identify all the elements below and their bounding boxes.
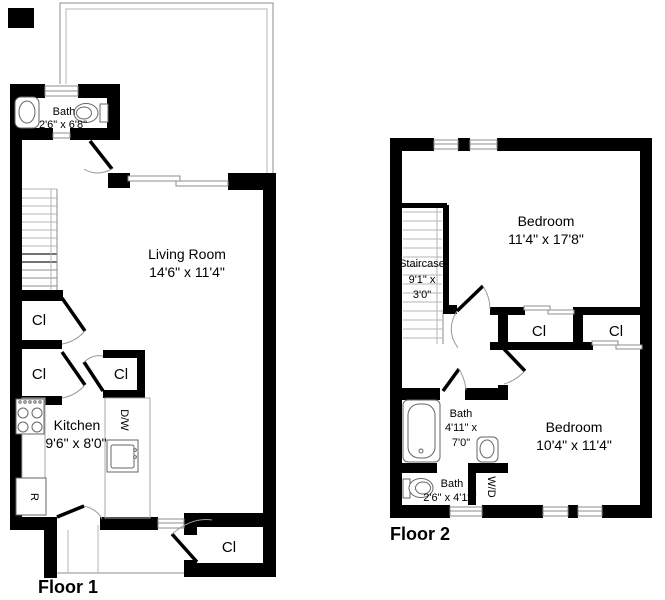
wall-segment	[390, 505, 450, 518]
kitchen-dims: 9'6" x 8'0"	[45, 435, 106, 451]
floor1-fixtures	[15, 97, 150, 518]
corner-marker	[8, 8, 34, 28]
wall-segment	[482, 505, 543, 518]
closet-label: Cl	[222, 539, 236, 556]
pocket-door-icon	[53, 133, 70, 138]
wall-segment	[10, 290, 63, 301]
wall-segment	[184, 563, 276, 577]
door-leaf	[62, 298, 85, 331]
wall-segment	[402, 203, 447, 208]
bedroom-large-dims: 11'4" x 17'8"	[508, 231, 584, 247]
bedroom-small-label: Bedroom	[546, 419, 603, 435]
wall-segment	[443, 205, 449, 308]
living-room-dims: 14'6" x 11'4"	[149, 264, 225, 280]
bedroom-small-dims: 10'4" x 11'4"	[536, 437, 612, 453]
sliding-door-icon	[616, 345, 642, 349]
floor-plan-page: Living Room 14'6" x 11'4" Kitchen 9'6" x…	[0, 0, 665, 600]
refrigerator-label: R	[28, 493, 40, 501]
sliding-door-icon	[524, 306, 550, 310]
closet-label: Cl	[609, 323, 623, 340]
floor1-plan: Living Room 14'6" x 11'4" Kitchen 9'6" x…	[10, 3, 276, 597]
door-leaf	[62, 352, 85, 385]
floor-plan-canvas: Living Room 14'6" x 11'4" Kitchen 9'6" x…	[0, 0, 665, 600]
sliding-door-icon	[548, 310, 574, 314]
bath-small-dims: 2'6" x 4'11"	[423, 492, 476, 504]
door-leaf	[84, 362, 103, 391]
toilet-icon	[100, 104, 108, 122]
floor2-plan: Bedroom 11'4" x 17'8" Bedroom 10'4" x 11…	[390, 138, 652, 544]
wall-segment	[640, 138, 652, 518]
door-leaf	[443, 369, 459, 391]
wall-segment	[498, 315, 508, 347]
door-leaf	[504, 349, 525, 371]
bath1-dims: 2'6" x 6'8"	[39, 119, 87, 131]
washer-dryer-label: W/D	[485, 476, 497, 497]
sliding-door-icon	[176, 181, 228, 186]
floor1-walls	[10, 84, 276, 578]
staircase-dims-1: 9'1" x	[409, 274, 436, 286]
wall-segment	[443, 305, 457, 314]
entry-vestibule-lines	[57, 525, 184, 573]
bath-large-dims-2: 7'0"	[452, 437, 470, 449]
wall-segment	[583, 307, 652, 315]
living-room-label: Living Room	[148, 246, 226, 262]
wall-segment	[490, 307, 525, 315]
wall-segment	[10, 84, 45, 98]
wall-segment	[468, 463, 508, 473]
wall-segment	[103, 390, 145, 398]
wall-segment	[465, 388, 508, 400]
closet-label: Cl	[532, 323, 546, 340]
closet-label: Cl	[32, 366, 46, 383]
bath-large-dims-1: 4'11" x	[445, 422, 478, 434]
wall-segment	[390, 388, 440, 400]
sliding-door-icon	[128, 176, 180, 181]
closet-label: Cl	[114, 366, 128, 383]
door-leaf	[457, 286, 483, 311]
dishwasher-label: D/W	[118, 409, 130, 431]
wall-segment	[10, 340, 62, 349]
staircase-floor1	[22, 189, 57, 290]
bath1-label: Bath	[53, 106, 76, 118]
door-leaf	[172, 534, 197, 562]
wall-segment	[107, 84, 120, 140]
wall-segment	[497, 138, 652, 151]
wall-segment	[263, 173, 276, 577]
wall-segment	[602, 505, 652, 518]
staircase-dims-2: 3'0"	[413, 289, 431, 301]
bath-small-label: Bath	[441, 478, 464, 490]
wall-segment	[10, 84, 22, 530]
kitchen-label: Kitchen	[54, 417, 101, 433]
floor1-title: Floor 1	[38, 577, 98, 597]
wall-segment	[390, 138, 402, 518]
staircase-label: Staircase	[399, 258, 445, 270]
closet-label: Cl	[32, 312, 46, 329]
sliding-door-icon	[592, 341, 618, 345]
door-leaf	[90, 141, 112, 169]
wall-segment	[390, 463, 437, 473]
floor2-title: Floor 2	[390, 524, 450, 544]
bedroom-large-label: Bedroom	[518, 213, 575, 229]
wall-segment	[568, 505, 578, 518]
wall-segment	[184, 513, 197, 535]
wall-segment	[100, 517, 158, 530]
floor2-doors	[443, 286, 525, 391]
wall-segment	[108, 173, 130, 188]
wall-segment	[458, 138, 470, 151]
wall-segment	[44, 517, 57, 578]
bath-large-label: Bath	[450, 408, 473, 420]
door-leaf	[57, 506, 84, 517]
